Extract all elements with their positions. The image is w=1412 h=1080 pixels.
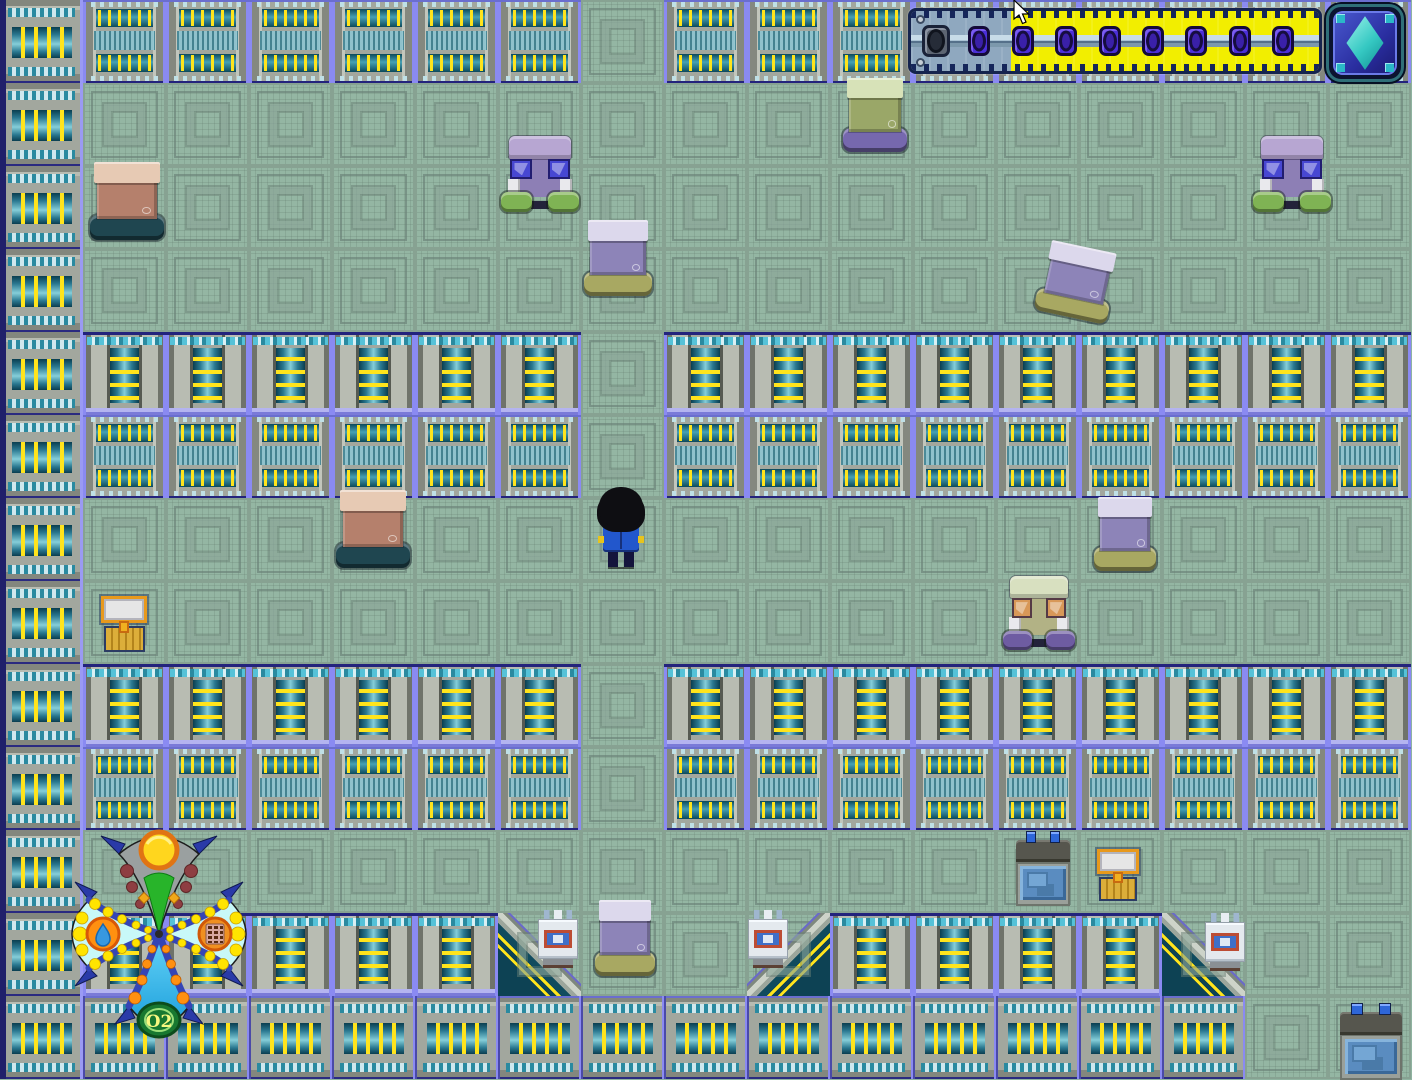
wall-tile [1162, 747, 1245, 830]
bed[interactable] [336, 490, 410, 568]
floor-tile [1328, 83, 1411, 166]
wall-tile [249, 332, 332, 415]
floor-tile [166, 498, 249, 581]
floor-tile [747, 83, 830, 166]
floor-tile [913, 581, 996, 664]
floor-tile [913, 498, 996, 581]
wall-tile [332, 0, 415, 83]
floor-tile [83, 83, 166, 166]
bar-teeth [911, 64, 1319, 71]
wall-edge-tile [0, 166, 83, 249]
energy-gem [1012, 26, 1034, 56]
wall-tile [83, 332, 166, 415]
floor-tile [581, 581, 664, 664]
bed-blanket [600, 917, 649, 955]
floor-tile [1245, 996, 1328, 1079]
floor-tile [1328, 166, 1411, 249]
wall-tile [83, 664, 166, 747]
wall-tile [1079, 332, 1162, 415]
floor-tile [498, 498, 581, 581]
floor-tile [747, 830, 830, 913]
wall-tile [415, 415, 498, 498]
floor-tile [830, 498, 913, 581]
machine-screen [1300, 159, 1322, 180]
floor-tile [498, 249, 581, 332]
floor-tile [1245, 581, 1328, 664]
bed-pillow [847, 78, 903, 98]
floor-tile [913, 249, 996, 332]
wall-tile [996, 747, 1079, 830]
energy-bar-track [908, 8, 1322, 74]
wall-tile [166, 415, 249, 498]
wall-tile [1328, 747, 1411, 830]
wall-tile [830, 0, 913, 83]
bed[interactable] [584, 220, 652, 296]
wall-tile [581, 996, 664, 1079]
healing-machine[interactable] [1253, 136, 1331, 212]
pc-button [1352, 1004, 1362, 1014]
wall-tile [1245, 747, 1328, 830]
wall-tile [1079, 415, 1162, 498]
wall-tile [913, 415, 996, 498]
wall-tile [913, 747, 996, 830]
console-screen [754, 930, 782, 949]
floor-tile [830, 830, 913, 913]
mouse-cursor [1012, 0, 1032, 26]
pc-button [1027, 832, 1036, 842]
floor-tile [996, 498, 1079, 581]
machine-pad [1253, 192, 1284, 212]
floor-tile [1328, 913, 1411, 996]
bed-blanket [849, 95, 901, 132]
machine-top [509, 136, 571, 159]
wall-tile [664, 747, 747, 830]
wall-tile [166, 664, 249, 747]
wall-tile [415, 913, 498, 996]
floor-tile [747, 166, 830, 249]
wall-tile [249, 415, 332, 498]
wall-tile [664, 996, 747, 1079]
floor-tile [166, 249, 249, 332]
wall-tile [747, 415, 830, 498]
chest-lid [1097, 849, 1139, 874]
floor-tile [415, 498, 498, 581]
gauge-blade-west [72, 899, 159, 970]
diamond-gem-icon [1346, 16, 1383, 70]
wall-tile [996, 332, 1079, 415]
wall-edge-tile [0, 415, 83, 498]
floor-tile [332, 581, 415, 664]
console-screen [1211, 933, 1239, 952]
floor-tile [1079, 581, 1162, 664]
floor-tile [415, 249, 498, 332]
energy-gem [1229, 26, 1251, 56]
machine-screen [1012, 598, 1032, 618]
player-legs [608, 552, 635, 567]
energy-gem [1099, 26, 1121, 56]
floor-tile [166, 166, 249, 249]
floor-tile [913, 166, 996, 249]
wall-tile [1162, 332, 1245, 415]
floor-tile [747, 498, 830, 581]
bed[interactable] [1094, 497, 1156, 571]
floor-tile [581, 415, 664, 498]
bed-pillow [94, 162, 159, 183]
machine-pad [548, 192, 579, 212]
wall-edge-tile [0, 498, 83, 581]
floor-tile [664, 83, 747, 166]
floor-tile [664, 581, 747, 664]
wall-tile [249, 664, 332, 747]
wall-tile [415, 332, 498, 415]
chest-latch [119, 621, 129, 633]
wall-edge-tile [0, 0, 83, 83]
floor-tile [415, 581, 498, 664]
floor-tile [166, 83, 249, 166]
wall-tile [83, 415, 166, 498]
floor-tile [415, 83, 498, 166]
floor-tile [581, 747, 664, 830]
wall-tile [830, 996, 913, 1079]
machine-pad [501, 192, 532, 212]
floor-tile [1162, 498, 1245, 581]
wall-tile [747, 332, 830, 415]
gauge-blade-east [159, 899, 246, 970]
floor-tile [249, 581, 332, 664]
machine-screen [510, 159, 532, 180]
wall-tile [1079, 747, 1162, 830]
floor-tile [581, 0, 664, 83]
bed[interactable] [595, 900, 655, 976]
oxygen-gauge: O2 [43, 808, 275, 1060]
floor-tile [747, 581, 830, 664]
o2-label: O2 [146, 1012, 173, 1032]
floor-tile [664, 913, 747, 996]
console-screen [544, 930, 572, 949]
wall-tile [415, 664, 498, 747]
wall-tile [664, 415, 747, 498]
wall-tile [332, 332, 415, 415]
treasure-chest[interactable] [99, 596, 149, 652]
wall-tile [498, 664, 581, 747]
bed-pillow [599, 900, 652, 921]
wall-tile [1162, 664, 1245, 747]
wall-edge-tile [0, 332, 83, 415]
energy-gem [968, 26, 990, 56]
machine-pad [1046, 631, 1075, 650]
pc-screen [1345, 1039, 1397, 1074]
floor-tile [664, 498, 747, 581]
pc-button [1051, 832, 1060, 842]
floor-tile [1079, 83, 1162, 166]
player-hand [598, 536, 604, 543]
wall-tile [498, 747, 581, 830]
wall-tile [415, 747, 498, 830]
floor-tile [1328, 581, 1411, 664]
floor-tile [1162, 581, 1245, 664]
wall-tile [332, 913, 415, 996]
wall-edge-tile [0, 249, 83, 332]
floor-tile [747, 249, 830, 332]
wall-tile [332, 996, 415, 1079]
wall-tile [498, 996, 581, 1079]
bed-pillow [1098, 497, 1153, 517]
energy-gem [1272, 26, 1294, 56]
gauge-blade-north [119, 832, 199, 934]
wall-tile [996, 415, 1079, 498]
wall-tile [996, 664, 1079, 747]
wall-tile [664, 0, 747, 83]
floor-tile [581, 664, 664, 747]
wall-edge-tile [0, 664, 83, 747]
machine-top [1261, 136, 1323, 159]
floor-tile [1162, 83, 1245, 166]
wall-tile [830, 913, 913, 996]
food-bar-icon [206, 924, 224, 944]
wall-tile [1328, 332, 1411, 415]
wall-tile [332, 664, 415, 747]
floor-tile [664, 166, 747, 249]
bed-blanket [1100, 514, 1151, 551]
floor-tile [249, 498, 332, 581]
floor-tile [1162, 830, 1245, 913]
chest-latch [1113, 872, 1122, 883]
player-hand [638, 536, 644, 543]
wall-tile [996, 913, 1079, 996]
wall-tile [1162, 415, 1245, 498]
floor-tile [581, 332, 664, 415]
floor-tile [1162, 166, 1245, 249]
wall-tile [1162, 996, 1245, 1079]
wall-tile [1245, 332, 1328, 415]
wall-tile [1328, 415, 1411, 498]
wall-tile [415, 996, 498, 1079]
console-terminal[interactable] [1205, 913, 1245, 971]
energy-gem [1185, 26, 1207, 56]
gem-button-face [1333, 11, 1397, 75]
floor-tile [1162, 249, 1245, 332]
wall-tile [1079, 913, 1162, 996]
floor-tile [664, 830, 747, 913]
wall-tile [830, 664, 913, 747]
player-character [597, 487, 645, 567]
computer-machine[interactable] [1016, 832, 1070, 906]
machine-foot [1283, 201, 1302, 209]
floor-tile [1328, 830, 1411, 913]
wall-tile [332, 415, 415, 498]
wall-tile [913, 664, 996, 747]
wall-tile [830, 747, 913, 830]
wall-tile [332, 747, 415, 830]
gauge-blade-south: O2 [129, 934, 189, 1037]
game-viewport: O2 [0, 0, 1412, 1080]
wall-tile [747, 996, 830, 1079]
floor-tile [498, 581, 581, 664]
floor-tile [830, 581, 913, 664]
pc-screen [1020, 866, 1065, 900]
machine-pad [1003, 631, 1032, 650]
wall-edge-tile [0, 581, 83, 664]
floor-tile [830, 166, 913, 249]
console-base [1210, 962, 1240, 971]
wall-tile [747, 0, 830, 83]
wall-tile [166, 0, 249, 83]
gem-button[interactable] [1326, 4, 1404, 82]
floor-tile [166, 581, 249, 664]
machine-screen [548, 159, 570, 180]
floor-tile [415, 166, 498, 249]
machine-foot [1030, 639, 1047, 647]
wall-tile [415, 0, 498, 83]
floor-tile [83, 249, 166, 332]
wall-tile [664, 332, 747, 415]
wall-tile [913, 913, 996, 996]
bed-blanket [343, 508, 404, 547]
floor-tile [249, 83, 332, 166]
floor-tile [249, 166, 332, 249]
gem-socket [922, 25, 950, 57]
wall-edge-tile [0, 83, 83, 166]
floor-tile [664, 249, 747, 332]
machine-screen [1046, 598, 1066, 618]
floor-tile [332, 249, 415, 332]
floor-tile [1245, 913, 1328, 996]
healing-machine[interactable] [1003, 576, 1075, 650]
wall-tile [1245, 664, 1328, 747]
machine-foot [531, 201, 550, 209]
wall-tile [166, 332, 249, 415]
floor-tile [1328, 498, 1411, 581]
gauge-hub [155, 930, 163, 938]
wall-tile [1245, 415, 1328, 498]
bed[interactable] [1033, 239, 1120, 325]
bed[interactable] [90, 162, 164, 240]
computer-machine[interactable] [1340, 1004, 1402, 1080]
chest-lid [101, 596, 147, 623]
screw-icon [916, 15, 925, 24]
pc-top [1340, 1012, 1402, 1035]
bed[interactable] [843, 78, 907, 152]
console-base [543, 959, 573, 968]
energy-gem [1055, 26, 1077, 56]
bed-blanket [590, 237, 646, 275]
console-terminal[interactable] [748, 910, 788, 968]
wall-tile [913, 996, 996, 1079]
wall-tile [1328, 664, 1411, 747]
floor-tile [1245, 498, 1328, 581]
wall-tile [1079, 996, 1162, 1079]
wall-tile [498, 332, 581, 415]
wall-tile [83, 0, 166, 83]
wall-tile [830, 415, 913, 498]
bar-teeth [911, 11, 1319, 18]
floor-tile [332, 830, 415, 913]
floor-tile [913, 83, 996, 166]
wall-tile [747, 747, 830, 830]
floor-tile [498, 830, 581, 913]
wall-tile [498, 415, 581, 498]
wall-tile [1079, 664, 1162, 747]
bed-blanket [97, 180, 158, 219]
console-base [753, 959, 783, 968]
wall-tile [830, 332, 913, 415]
floor-tile [1328, 249, 1411, 332]
machine-screen [1262, 159, 1284, 180]
pc-button [1380, 1004, 1390, 1014]
energy-gem [1142, 26, 1164, 56]
machine-top [1010, 576, 1068, 598]
floor-tile [996, 166, 1079, 249]
screw-icon [916, 58, 925, 67]
floor-tile [581, 83, 664, 166]
bed-pillow [588, 220, 648, 241]
wall-tile [747, 664, 830, 747]
wall-tile [498, 0, 581, 83]
wall-tile [664, 664, 747, 747]
floor-tile [1245, 830, 1328, 913]
machine-pad [1300, 192, 1331, 212]
floor-tile [332, 166, 415, 249]
player-hair [599, 487, 643, 527]
floor-tile [83, 498, 166, 581]
bed-pillow [340, 490, 405, 511]
floor-tile [249, 249, 332, 332]
healing-machine[interactable] [501, 136, 579, 212]
treasure-chest[interactable] [1095, 849, 1141, 901]
wall-tile [996, 996, 1079, 1079]
floor-tile [1079, 166, 1162, 249]
floor-tile [830, 249, 913, 332]
pc-top [1016, 840, 1070, 862]
floor-tile [996, 83, 1079, 166]
wall-tile [249, 0, 332, 83]
floor-tile [332, 83, 415, 166]
floor-tile [913, 830, 996, 913]
console-terminal[interactable] [538, 910, 578, 968]
floor-tile [415, 830, 498, 913]
floor-tile [1245, 249, 1328, 332]
wall-tile [913, 332, 996, 415]
